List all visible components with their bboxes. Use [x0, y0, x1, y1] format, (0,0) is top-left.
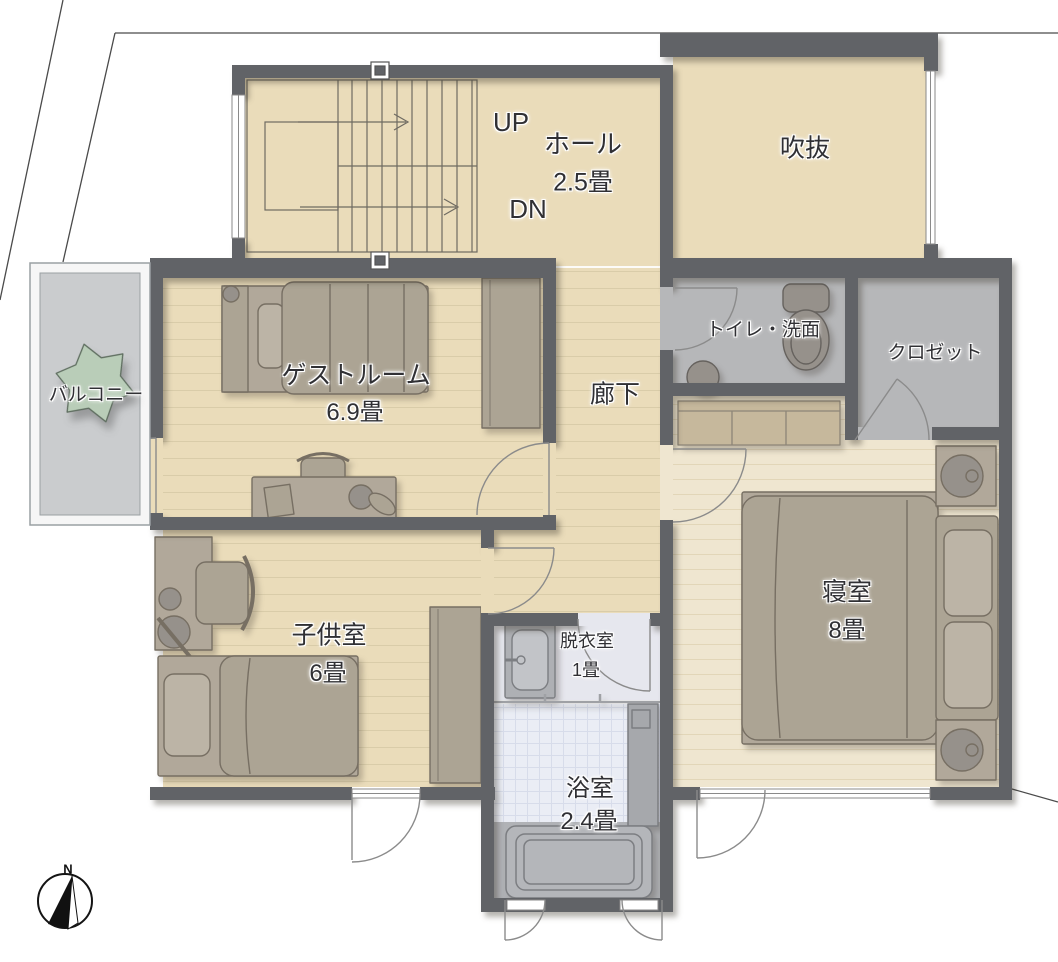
label-hall-size: 2.5畳 — [553, 171, 613, 196]
nightstand-bottom — [936, 720, 996, 780]
bedroom-window — [700, 789, 930, 798]
compass — [38, 874, 92, 929]
label-stairs-up: UP — [493, 109, 529, 135]
label-dressing-size: 1畳 — [572, 661, 600, 679]
guest-wardrobe — [482, 278, 540, 428]
label-bath-size: 2.4畳 — [560, 810, 617, 834]
stairs-window — [232, 95, 245, 238]
label-bath: 浴室 — [566, 777, 614, 801]
washbasin — [505, 622, 555, 698]
label-toilet: トイレ・洗面 — [706, 321, 820, 340]
bedroom-bed — [742, 492, 998, 744]
label-child: 子供室 — [291, 624, 366, 649]
label-stairs-down: DN — [509, 196, 547, 222]
label-bedroom-size: 8畳 — [828, 619, 865, 643]
floorplan-drawing — [0, 0, 1058, 962]
label-dressing: 脱衣室 — [560, 632, 614, 650]
child-window — [352, 789, 420, 798]
compass-north-label: N — [63, 863, 72, 876]
label-void: 吹抜 — [780, 137, 830, 162]
label-closet: クロゼット — [887, 344, 982, 363]
void-window — [926, 71, 935, 244]
label-child-size: 6畳 — [309, 662, 346, 686]
child-closet — [430, 607, 481, 783]
label-hall: ホール — [544, 131, 622, 157]
nightstand-top — [936, 446, 996, 506]
bedroom-cabinet — [678, 401, 840, 445]
label-bedroom: 寝室 — [822, 581, 872, 606]
child-casement — [352, 794, 420, 862]
bedroom-casement — [697, 790, 765, 858]
label-balcony: バルコニー — [49, 386, 144, 405]
label-guest: ゲストルーム — [281, 364, 430, 389]
label-corridor: 廊下 — [590, 383, 640, 408]
label-guest-size: 6.9畳 — [326, 401, 383, 425]
floorplan: UP ホール 2.5畳 DN 吹抜 ゲストルーム 6.9畳 バルコニー 廊下 ト… — [0, 0, 1058, 962]
